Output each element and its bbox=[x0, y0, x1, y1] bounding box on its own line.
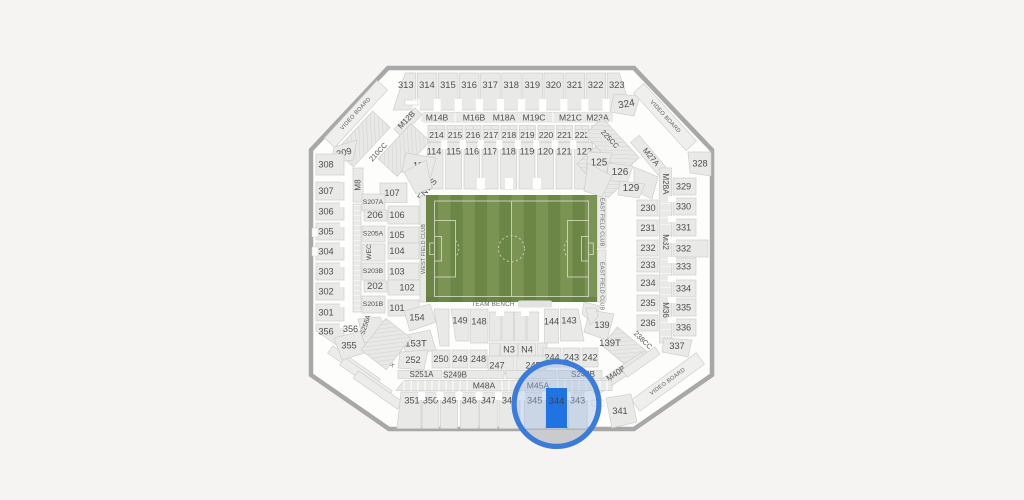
svg-text:117: 117 bbox=[483, 147, 498, 157]
svg-text:317: 317 bbox=[482, 79, 498, 90]
svg-text:TEAM BENCH: TEAM BENCH bbox=[471, 301, 515, 308]
svg-text:219: 219 bbox=[520, 130, 535, 140]
svg-text:301: 301 bbox=[318, 308, 333, 318]
svg-text:101: 101 bbox=[389, 303, 404, 313]
svg-text:206: 206 bbox=[367, 210, 383, 221]
svg-text:114: 114 bbox=[427, 147, 442, 157]
svg-text:M19C: M19C bbox=[523, 112, 546, 122]
svg-text:118: 118 bbox=[501, 147, 516, 157]
svg-text:M8: M8 bbox=[354, 179, 363, 191]
svg-text:107: 107 bbox=[384, 188, 399, 198]
svg-text:148: 148 bbox=[471, 317, 486, 327]
svg-text:329: 329 bbox=[676, 182, 691, 192]
svg-text:335: 335 bbox=[676, 303, 691, 313]
svg-text:233: 233 bbox=[640, 260, 655, 270]
svg-text:242: 242 bbox=[582, 353, 597, 363]
svg-text:215: 215 bbox=[448, 130, 463, 140]
svg-text:333: 333 bbox=[676, 262, 691, 272]
svg-text:348: 348 bbox=[462, 396, 477, 406]
svg-text:102: 102 bbox=[399, 283, 414, 293]
svg-text:115: 115 bbox=[446, 147, 461, 157]
svg-text:247: 247 bbox=[489, 361, 504, 371]
svg-text:306: 306 bbox=[318, 207, 333, 217]
svg-text:M23A: M23A bbox=[586, 112, 609, 122]
svg-text:218: 218 bbox=[502, 130, 517, 140]
svg-text:EAST FIELD CLUB: EAST FIELD CLUB bbox=[599, 262, 605, 311]
svg-text:214: 214 bbox=[429, 130, 444, 140]
svg-text:316: 316 bbox=[461, 79, 477, 90]
svg-text:S251A: S251A bbox=[409, 370, 434, 379]
svg-text:116: 116 bbox=[464, 147, 479, 157]
svg-text:351: 351 bbox=[404, 396, 419, 406]
svg-text:315: 315 bbox=[440, 79, 456, 90]
svg-text:248: 248 bbox=[471, 354, 486, 364]
svg-text:119: 119 bbox=[520, 147, 535, 157]
svg-text:M18A: M18A bbox=[493, 112, 516, 122]
svg-text:250: 250 bbox=[433, 354, 448, 364]
svg-text:M16B: M16B bbox=[463, 112, 486, 122]
svg-text:M28A: M28A bbox=[661, 174, 670, 196]
svg-text:318: 318 bbox=[503, 79, 519, 90]
svg-text:216: 216 bbox=[466, 130, 481, 140]
svg-text:347: 347 bbox=[481, 396, 496, 406]
svg-text:320: 320 bbox=[546, 79, 562, 90]
svg-text:103: 103 bbox=[389, 267, 404, 277]
svg-text:305: 305 bbox=[318, 227, 333, 237]
svg-text:126: 126 bbox=[612, 167, 629, 178]
svg-text:M36: M36 bbox=[661, 302, 670, 318]
svg-text:104: 104 bbox=[389, 246, 404, 256]
svg-text:355: 355 bbox=[341, 341, 356, 351]
svg-text:WEC: WEC bbox=[366, 244, 373, 260]
svg-text:313: 313 bbox=[398, 79, 414, 90]
svg-text:230: 230 bbox=[640, 203, 655, 213]
svg-text:217: 217 bbox=[484, 130, 499, 140]
svg-text:232: 232 bbox=[640, 243, 655, 253]
svg-text:321: 321 bbox=[567, 79, 583, 90]
svg-text:252: 252 bbox=[405, 355, 420, 365]
svg-text:105: 105 bbox=[389, 230, 404, 240]
svg-text:202: 202 bbox=[367, 281, 383, 292]
svg-text:121: 121 bbox=[556, 147, 571, 157]
svg-text:235: 235 bbox=[640, 298, 655, 308]
svg-text:139: 139 bbox=[594, 320, 609, 330]
svg-text:332: 332 bbox=[676, 244, 691, 254]
svg-text:S205A: S205A bbox=[363, 231, 384, 238]
svg-text:M48A: M48A bbox=[473, 380, 496, 390]
svg-text:330: 330 bbox=[676, 202, 691, 212]
svg-text:356: 356 bbox=[318, 327, 333, 337]
svg-text:231: 231 bbox=[640, 223, 655, 233]
svg-text:234: 234 bbox=[640, 278, 655, 288]
svg-text:S203B: S203B bbox=[363, 268, 384, 275]
svg-text:314: 314 bbox=[419, 79, 435, 90]
svg-text:144: 144 bbox=[544, 317, 559, 327]
svg-text:139T: 139T bbox=[599, 338, 621, 349]
svg-text:308: 308 bbox=[318, 160, 333, 170]
svg-text:S249B: S249B bbox=[443, 370, 467, 379]
svg-text:349: 349 bbox=[441, 396, 456, 406]
svg-text:304: 304 bbox=[318, 247, 333, 257]
svg-text:S201B: S201B bbox=[363, 301, 384, 308]
svg-text:350: 350 bbox=[423, 396, 438, 406]
svg-text:344: 344 bbox=[549, 395, 565, 406]
svg-text:303: 303 bbox=[318, 267, 333, 277]
svg-text:N3: N3 bbox=[503, 345, 515, 355]
svg-text:331: 331 bbox=[676, 223, 691, 233]
svg-text:323: 323 bbox=[609, 79, 625, 90]
svg-text:322: 322 bbox=[588, 79, 604, 90]
svg-text:143: 143 bbox=[561, 316, 576, 326]
svg-text:154: 154 bbox=[409, 313, 424, 323]
svg-text:319: 319 bbox=[524, 79, 540, 90]
svg-text:328: 328 bbox=[692, 159, 707, 169]
svg-text:337: 337 bbox=[669, 341, 684, 351]
svg-text:120: 120 bbox=[538, 147, 553, 157]
svg-text:M21C: M21C bbox=[559, 112, 582, 122]
svg-text:356: 356 bbox=[343, 324, 358, 334]
svg-text:249: 249 bbox=[452, 354, 467, 364]
svg-text:302: 302 bbox=[318, 287, 333, 297]
svg-text:S207A: S207A bbox=[363, 199, 384, 206]
svg-text:129: 129 bbox=[623, 183, 640, 194]
svg-text:307: 307 bbox=[318, 186, 333, 196]
svg-text:221: 221 bbox=[557, 130, 572, 140]
svg-text:N4: N4 bbox=[521, 345, 533, 355]
svg-text:334: 334 bbox=[676, 284, 691, 294]
svg-text:M14B: M14B bbox=[426, 112, 449, 122]
svg-text:336: 336 bbox=[676, 323, 691, 333]
svg-text:236: 236 bbox=[640, 318, 655, 328]
svg-text:EAST FIELD CLUB: EAST FIELD CLUB bbox=[599, 198, 605, 247]
svg-text:149: 149 bbox=[452, 316, 467, 326]
svg-text:220: 220 bbox=[539, 130, 554, 140]
svg-text:106: 106 bbox=[389, 210, 404, 220]
svg-text:341: 341 bbox=[612, 406, 627, 416]
